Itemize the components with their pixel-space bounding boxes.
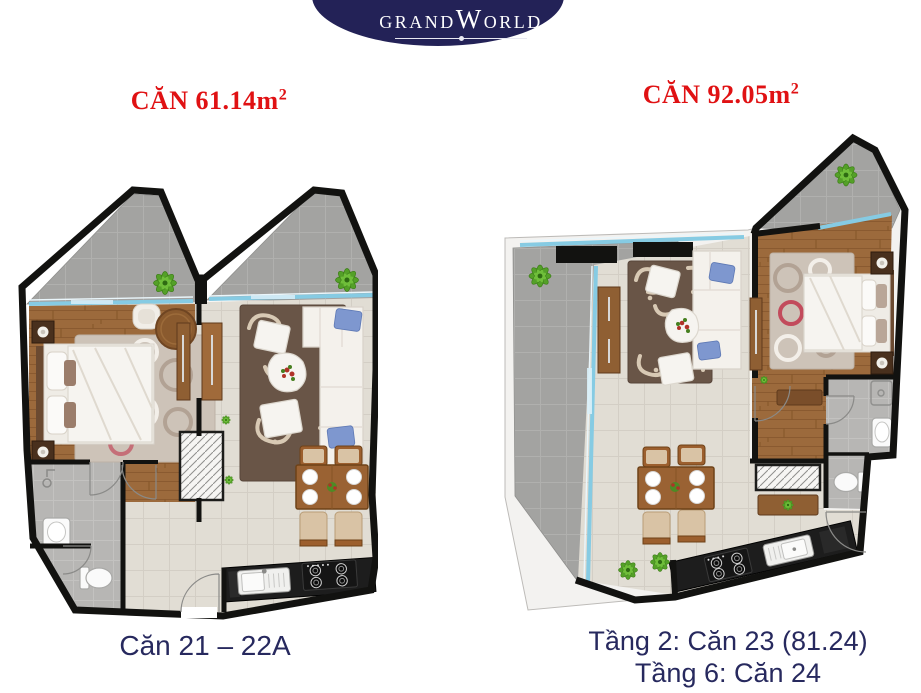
plant-icon: [783, 500, 794, 511]
right-floor-plan: [488, 118, 913, 623]
plant-icon: [222, 416, 231, 425]
hatched-wardrobe: [756, 465, 820, 490]
wall-stub: [556, 246, 617, 263]
dining-table: [296, 465, 368, 509]
bench: [777, 390, 822, 405]
plant-icon: [619, 561, 638, 580]
hatched-closet: [180, 432, 223, 500]
sofa-cushion: [327, 425, 355, 448]
bathroom-sink: [872, 418, 892, 447]
logo-underline: [395, 38, 527, 40]
ottoman: [253, 320, 290, 354]
left-unit-caption: Căn 21 – 22A: [55, 630, 355, 662]
plant-icon: [835, 164, 857, 186]
grandworld-logo: GRANDWORLD: [312, 0, 564, 46]
kitchen-sink: [237, 567, 291, 595]
plant-icon: [529, 265, 551, 287]
toilet: [834, 472, 866, 492]
plant-icon: [225, 476, 234, 485]
nightstand: [871, 252, 893, 274]
floor-plan-sheet: GRANDWORLD CĂN 61.14m2 CĂN 92.05m2: [0, 0, 921, 693]
nightstand: [871, 352, 893, 374]
coffee-table: [665, 308, 698, 342]
plant-icon: [651, 553, 670, 572]
toilet: [80, 567, 112, 589]
entry-door-gap: [181, 607, 217, 618]
bed: [804, 270, 894, 356]
right-unit-area-label: CĂN 92.05m2: [571, 80, 871, 110]
sofa-cushion: [334, 308, 363, 331]
grandworld-logo-text: GRANDWORLD: [379, 9, 543, 34]
sofa: [693, 251, 741, 369]
ottoman: [658, 352, 694, 385]
wall-stub: [633, 242, 693, 257]
nightstand: [32, 321, 54, 343]
tv-sideboard: [598, 287, 620, 373]
coffee-table: [268, 353, 306, 392]
left-unit-area-label: CĂN 61.14m2: [59, 86, 359, 116]
left-floor-plan: [13, 180, 378, 625]
plant-icon: [154, 272, 177, 295]
sofa-cushion: [709, 262, 736, 284]
bathroom-sink: [43, 518, 70, 547]
bed: [36, 344, 154, 444]
plant-icon: [760, 376, 768, 384]
right-unit-caption: Tầng 2: Căn 23 (81.24) Tầng 6: Căn 24: [547, 625, 909, 689]
right-unit-caption-line1: Tầng 2: Căn 23 (81.24): [547, 625, 909, 657]
dining-table: [638, 467, 714, 509]
sliding-door-panel: [750, 298, 762, 370]
sofa-cushion: [697, 341, 721, 361]
plant-icon: [336, 269, 359, 292]
right-unit-caption-line2: Tầng 6: Căn 24: [547, 657, 909, 689]
ottoman: [260, 399, 303, 438]
stove: [302, 560, 358, 591]
